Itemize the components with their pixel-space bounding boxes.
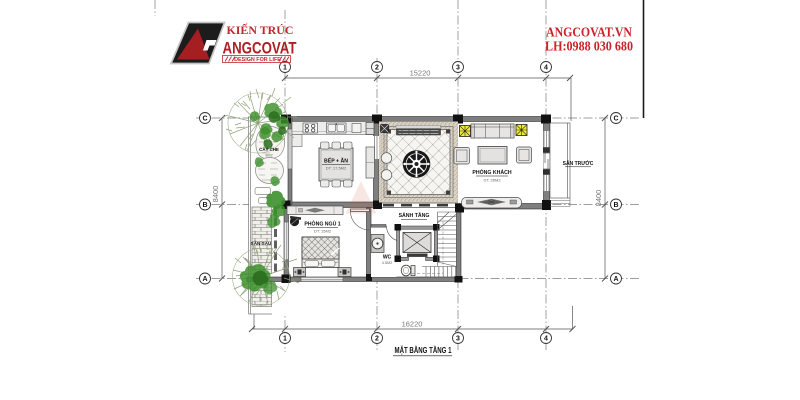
svg-text:15220: 15220 xyxy=(410,69,431,78)
svg-text:WC: WC xyxy=(383,255,392,261)
svg-text:C: C xyxy=(202,116,207,123)
svg-text:SẢNH TẦNG: SẢNH TẦNG xyxy=(399,212,430,219)
svg-text:9M2: 9M2 xyxy=(265,154,272,158)
svg-text:DESIGN FOR LIFE: DESIGN FOR LIFE xyxy=(234,57,281,63)
svg-text:PHÒNG NGỦ 1: PHÒNG NGỦ 1 xyxy=(304,220,340,228)
svg-text:3: 3 xyxy=(456,65,460,72)
svg-text:8400: 8400 xyxy=(211,186,220,203)
svg-text:8400: 8400 xyxy=(594,190,603,207)
svg-text:DT: 17.5M2: DT: 17.5M2 xyxy=(326,166,347,171)
svg-text:ANGCOVAT.VN: ANGCOVAT.VN xyxy=(546,25,632,40)
svg-text:A: A xyxy=(613,276,618,283)
svg-text:B: B xyxy=(202,202,207,209)
svg-text:2: 2 xyxy=(375,65,379,72)
svg-text:2: 2 xyxy=(375,336,379,343)
svg-text:4: 4 xyxy=(544,65,548,72)
svg-text:LH:0988 030 680: LH:0988 030 680 xyxy=(545,39,633,54)
svg-text:B: B xyxy=(613,202,618,209)
svg-text:SÂN SAU: SÂN SAU xyxy=(251,240,272,246)
svg-text:SÂN TRƯỚC: SÂN TRƯỚC xyxy=(563,159,594,167)
svg-text:4: 4 xyxy=(544,336,548,343)
svg-text:1: 1 xyxy=(283,336,287,343)
svg-text:KIẾN TRÚC: KIẾN TRÚC xyxy=(227,22,294,37)
svg-text:1: 1 xyxy=(283,65,287,72)
svg-text:DT: 26M2: DT: 26M2 xyxy=(483,178,501,183)
svg-text:ANGCOVAT: ANGCOVAT xyxy=(223,40,297,58)
svg-text:PHÒNG KHÁCH: PHÒNG KHÁCH xyxy=(472,168,511,176)
svg-text:16220: 16220 xyxy=(402,320,423,329)
svg-text:4.5M2: 4.5M2 xyxy=(382,261,393,265)
svg-text:MẶT BẰNG TẦNG 1: MẶT BẰNG TẦNG 1 xyxy=(395,345,452,355)
svg-text:3: 3 xyxy=(456,336,460,343)
svg-text:DT: 15M2: DT: 15M2 xyxy=(314,229,332,234)
svg-text:C: C xyxy=(613,116,618,123)
svg-text:BẾP + ĂN: BẾP + ĂN xyxy=(324,158,348,165)
svg-text:A: A xyxy=(202,276,207,283)
svg-text:CÂY CHE: CÂY CHE xyxy=(259,147,279,152)
